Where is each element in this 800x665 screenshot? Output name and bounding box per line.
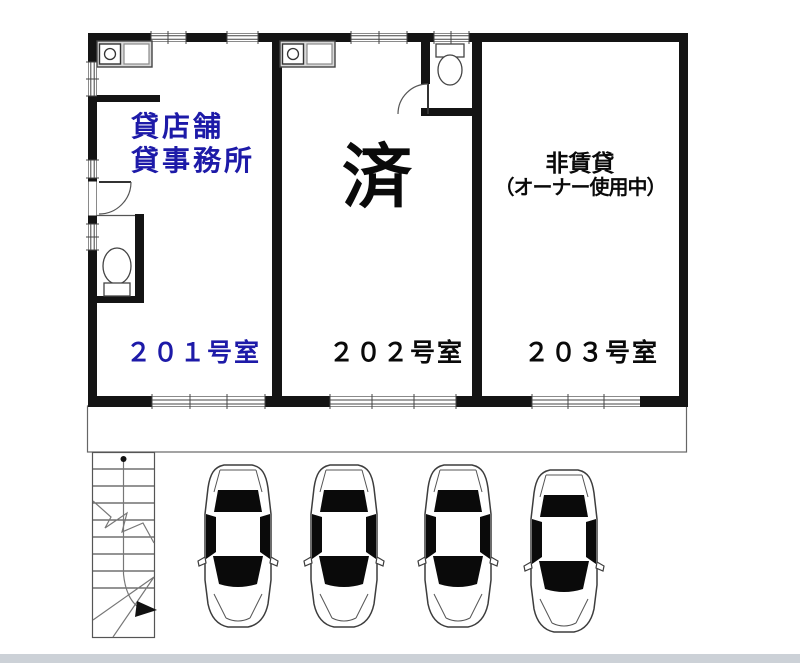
room-label-203: ２０３号室 (524, 339, 659, 367)
car-icon (524, 470, 604, 632)
corridor-outline (88, 406, 687, 452)
window-icon (86, 224, 99, 250)
kitchen-sink-icon (280, 41, 335, 67)
unit-203-status: 非賃貸 （オーナー使用中） (478, 151, 682, 201)
unit-202-interior (280, 33, 472, 116)
window-icon (434, 31, 469, 44)
kitchen-sink-icon (97, 41, 152, 67)
room-label-201: ２０１号室 (126, 339, 261, 367)
unit-201-status-line1: 貸店舗 (131, 110, 255, 144)
room-label-202: ２０２号室 (329, 339, 464, 367)
car-icon (198, 465, 278, 627)
door-swing-icon (89, 182, 132, 216)
wall-right (679, 33, 688, 407)
parking-area (198, 465, 604, 632)
unit-201-status: 貸店舗 貸事務所 (131, 110, 255, 178)
toilet-icon (436, 44, 464, 85)
wall-partition-201-202 (272, 33, 282, 407)
unit-202-status: 済 (342, 141, 412, 213)
window-icon (227, 31, 258, 44)
toilet-icon (103, 248, 131, 296)
floorplan-page: 貸店舗 貸事務所 済 非賃貸 （オーナー使用中） ２０１号室 ２０２号室 ２０３… (0, 0, 800, 665)
wall-stub (97, 95, 160, 102)
car-icon (304, 465, 384, 627)
unit-201-status-line2: 貸事務所 (131, 144, 255, 178)
car-icon (418, 465, 498, 627)
wall-partition-202-203 (472, 33, 482, 407)
floorplan-drawing (0, 0, 800, 665)
toilet-room (97, 214, 144, 303)
staircase-icon (93, 453, 158, 638)
window-icon (351, 31, 407, 44)
unit-203-status-line1: 非賃貸 (478, 151, 682, 176)
footer-divider (0, 654, 800, 663)
unit-203-status-line2: （オーナー使用中） (478, 176, 682, 201)
window-icon (86, 160, 99, 178)
window-icon (151, 31, 186, 44)
toilet-room (398, 33, 472, 116)
